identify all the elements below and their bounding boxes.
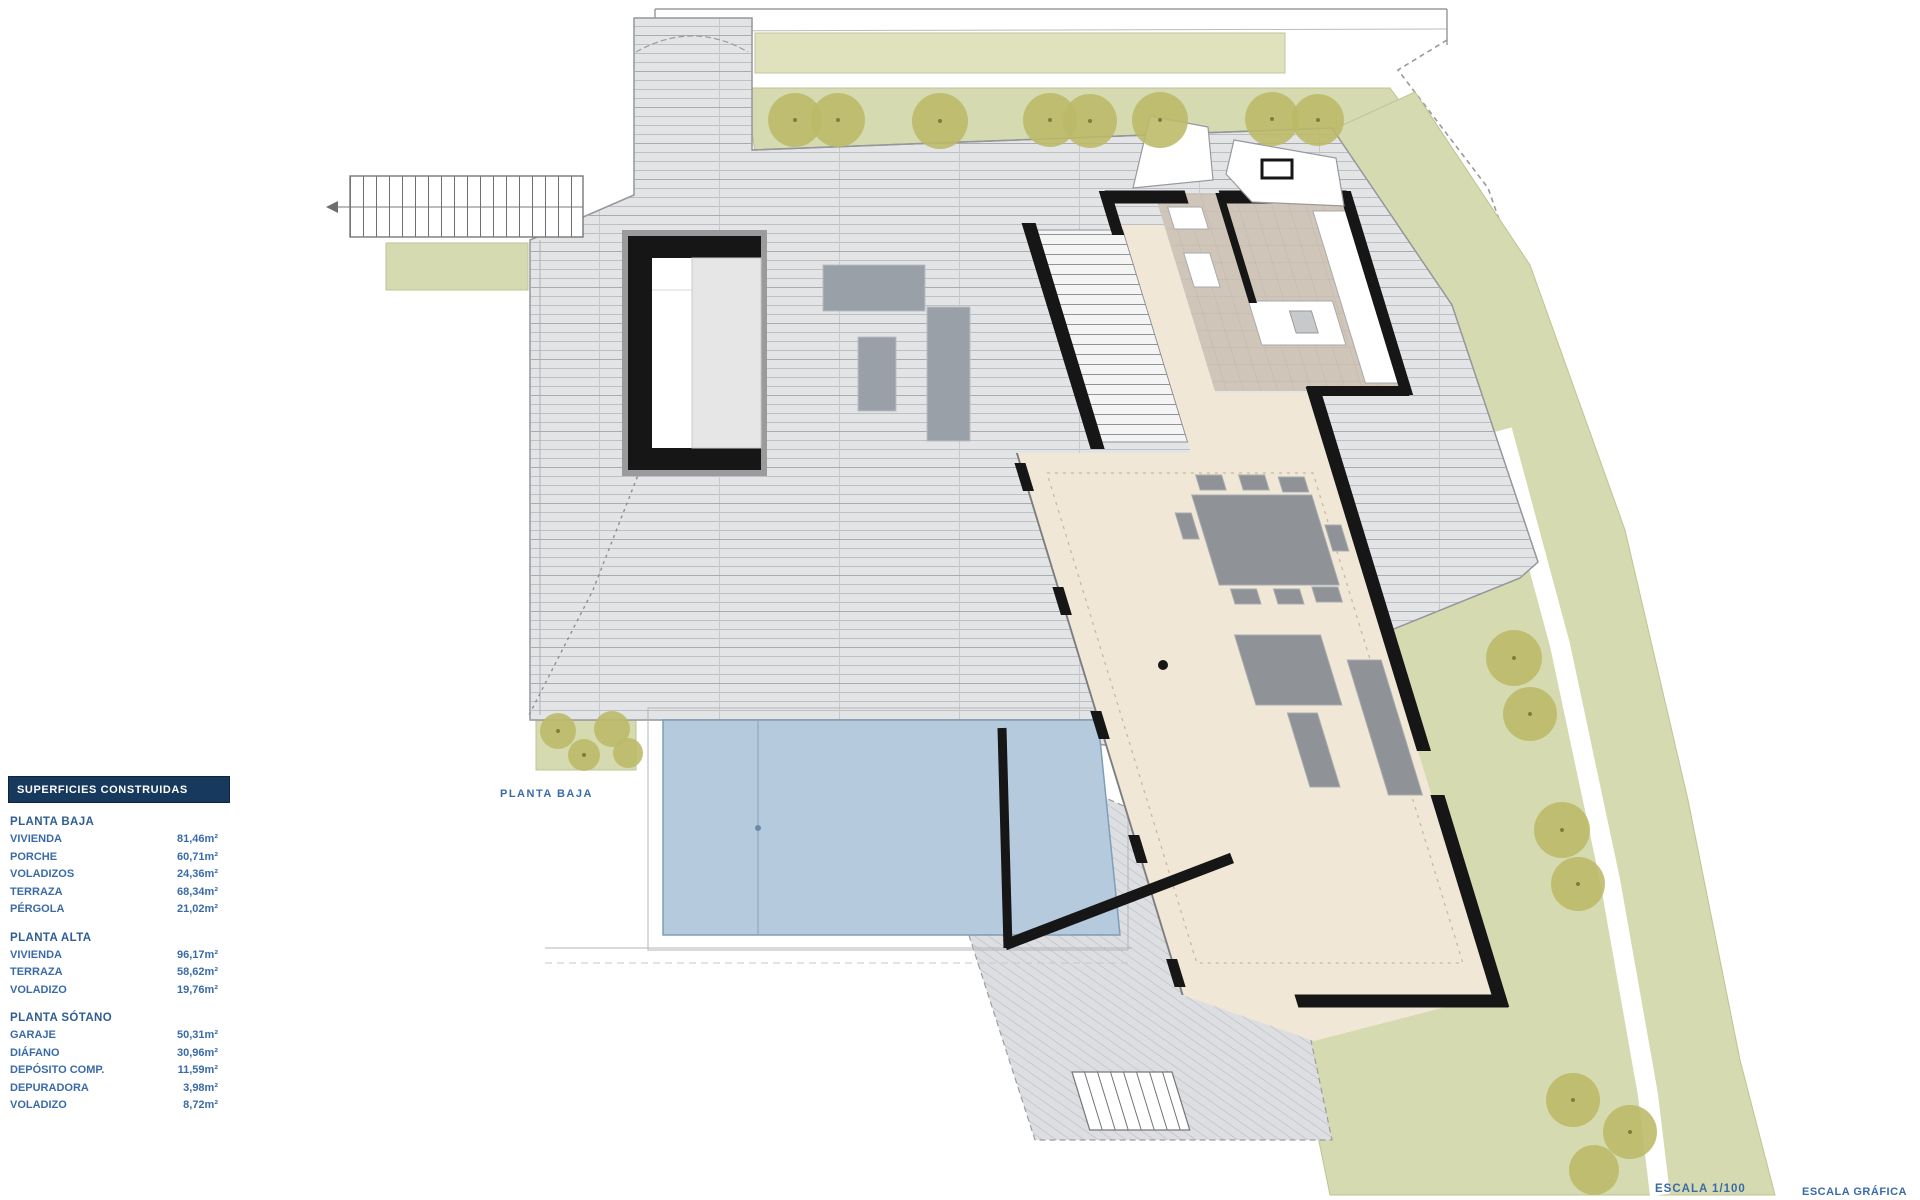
legend-row: TERRAZA 58,62m² [10, 964, 232, 982]
exterior-stair [1072, 1072, 1190, 1130]
legend-row: VOLADIZO 8,72m² [10, 1097, 232, 1115]
floor-plan-page: SUPERFICIES CONSTRUIDAS PLANTA BAJA VIVI… [0, 0, 1920, 1200]
legend-section-planta-alta: PLANTA ALTA VIVIENDA 96,17m² TERRAZA 58,… [8, 932, 232, 1000]
legend-row: VOLADIZOS 24,36m² [10, 866, 232, 884]
graphic-scale-label: ESCALA GRÁFICA [1802, 1186, 1907, 1198]
surface-legend: SUPERFICIES CONSTRUIDAS PLANTA BAJA VIVI… [8, 776, 232, 1115]
legend-row: VOLADIZO 19,76m² [10, 982, 232, 1000]
legend-header: SUPERFICIES CONSTRUIDAS [8, 776, 230, 803]
pergola-room [622, 230, 767, 476]
legend-row: VIVIENDA 81,46m² [10, 831, 232, 849]
legend-row: GARAJE 50,31m² [10, 1027, 232, 1045]
legend-section-planta-sotano: PLANTA SÓTANO GARAJE 50,31m² DIÁFANO 30,… [8, 1012, 232, 1115]
section-title: PLANTA ALTA [10, 932, 232, 944]
floor-plan-label: PLANTA BAJA [500, 788, 593, 800]
legend-row: DEPÓSITO COMP. 11,59m² [10, 1062, 232, 1080]
legend-row: PÉRGOLA 21,02m² [10, 901, 232, 919]
legend-row: DIÁFANO 30,96m² [10, 1045, 232, 1063]
legend-row: DEPURADORA 3,98m² [10, 1080, 232, 1098]
floor-plan-drawing [0, 0, 1920, 1200]
legend-row: TERRAZA 68,34m² [10, 884, 232, 902]
legend-section-planta-baja: PLANTA BAJA VIVIENDA 81,46m² PORCHE 60,7… [8, 816, 232, 919]
legend-row: VIVIENDA 96,17m² [10, 947, 232, 965]
section-title: PLANTA BAJA [10, 816, 232, 828]
section-title: PLANTA SÓTANO [10, 1012, 232, 1024]
legend-row: PORCHE 60,71m² [10, 849, 232, 867]
scale-label: ESCALA 1/100 [1655, 1183, 1746, 1195]
